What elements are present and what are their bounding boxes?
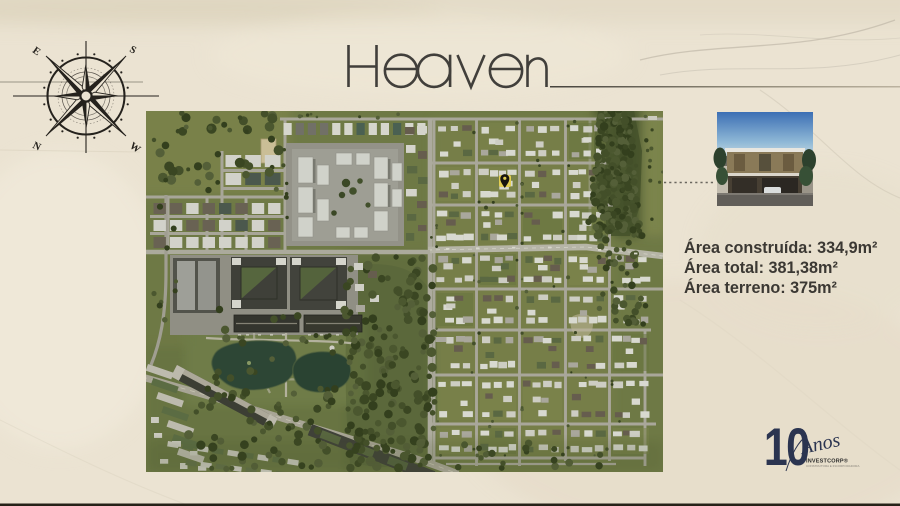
svg-text:Área total: 381,38m²: Área total: 381,38m²	[684, 258, 838, 277]
svg-text:Área construída: 334,9m²: Área construída: 334,9m²	[684, 238, 878, 257]
svg-text:Área terreno: 375m²: Área terreno: 375m²	[684, 278, 838, 297]
svg-text:CONSTRUTORA E INCORPORADORA: CONSTRUTORA E INCORPORADORA	[806, 464, 859, 468]
